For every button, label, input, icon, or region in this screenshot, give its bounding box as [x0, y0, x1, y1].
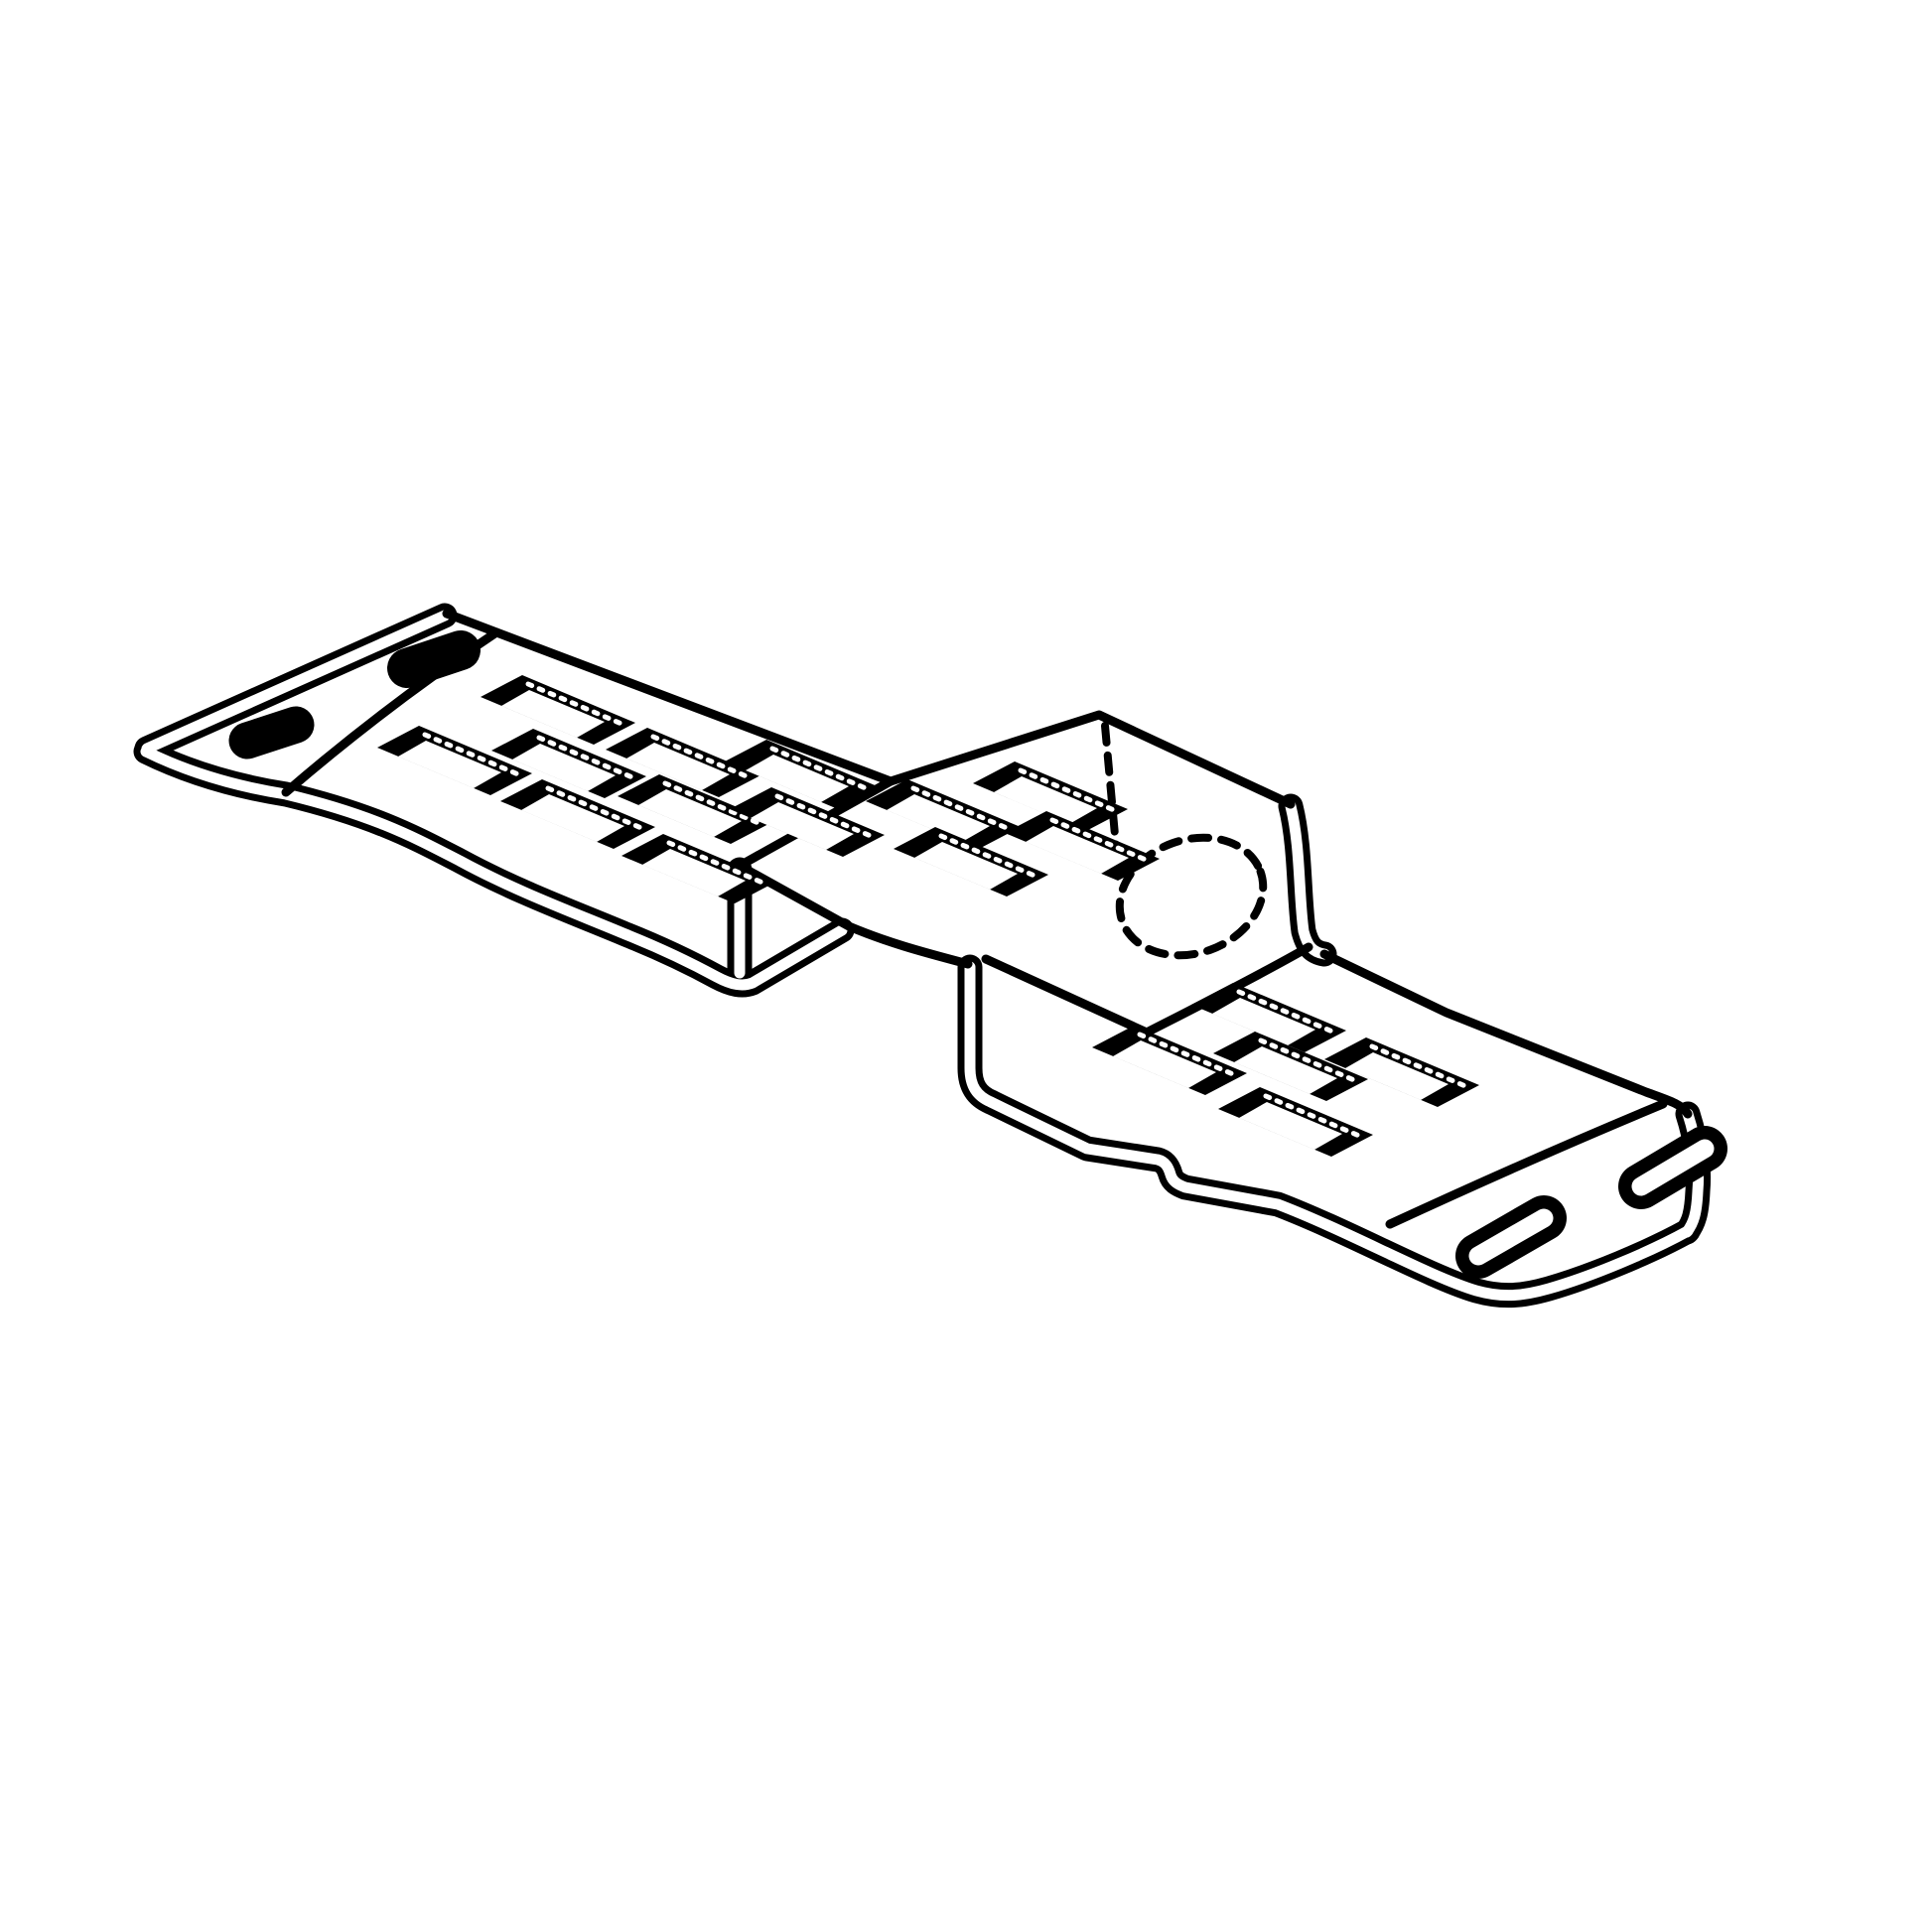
mounting-hole-oval: [247, 725, 296, 741]
bracket-isometric-diagram: [0, 0, 1932, 1932]
mounting-hole-oval: [407, 650, 461, 668]
bracket-diagram-stage: [0, 0, 1932, 1932]
